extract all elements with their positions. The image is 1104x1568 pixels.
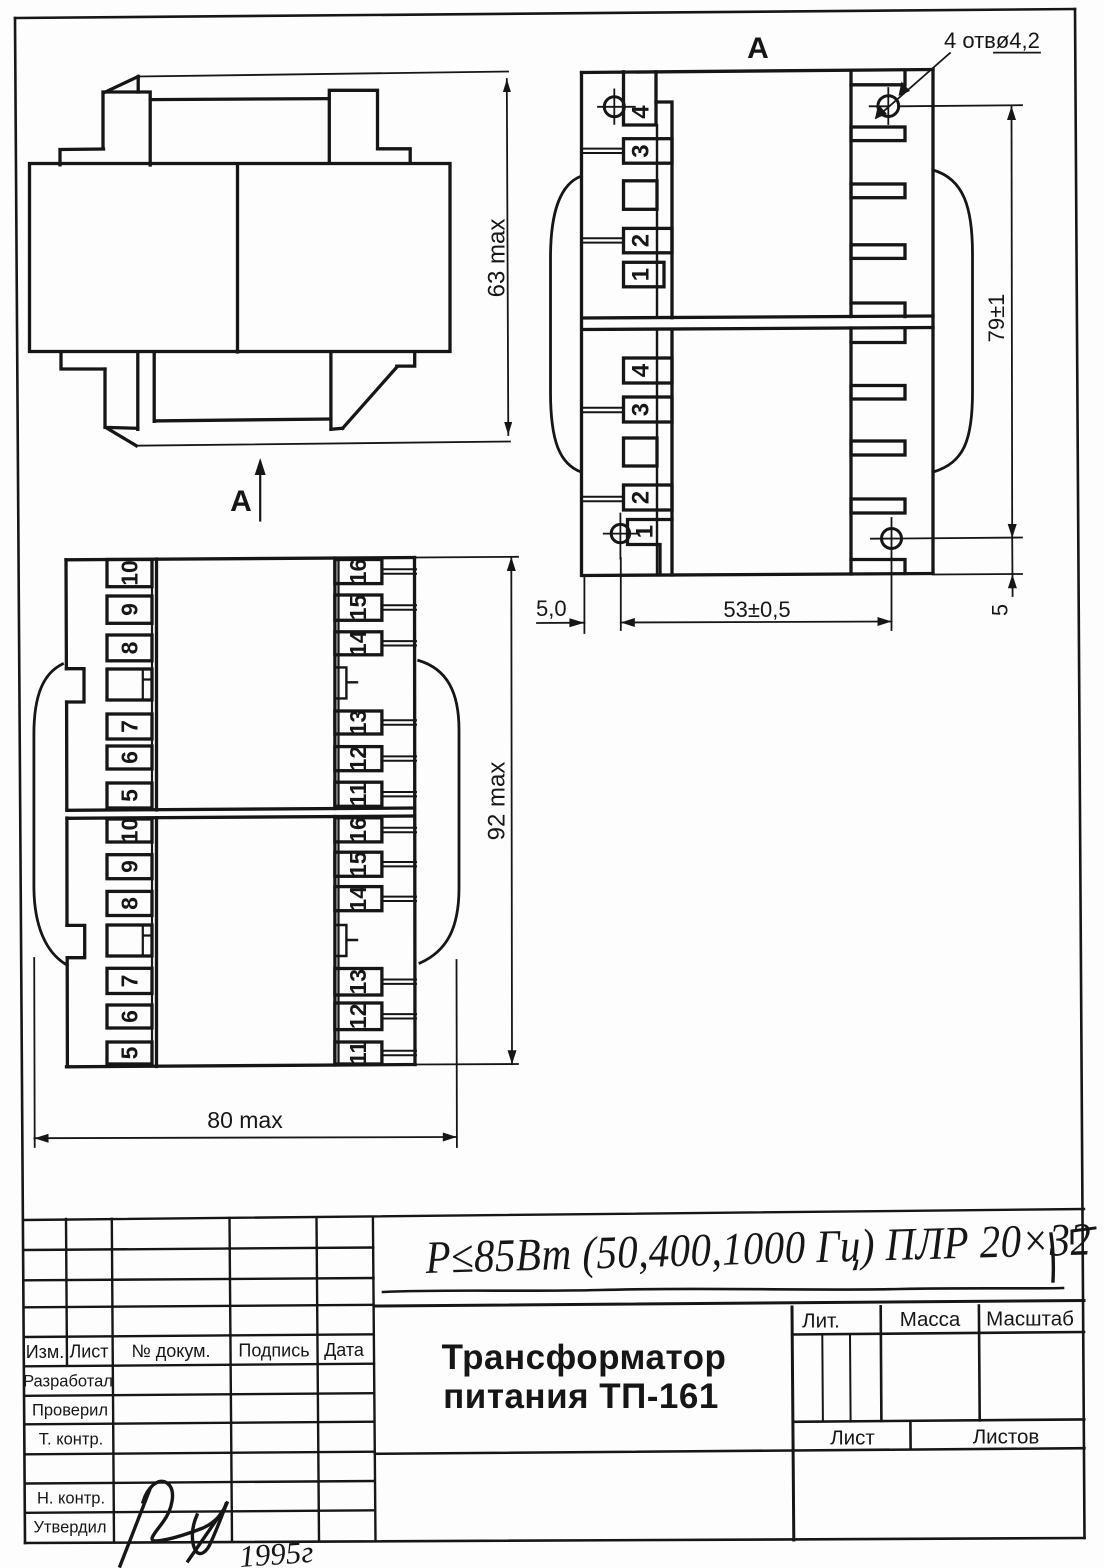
svg-text:92 max: 92 max: [484, 762, 511, 841]
svg-text:8: 8: [117, 641, 143, 654]
svg-text:9: 9: [117, 860, 143, 873]
svg-text:4: 4: [628, 363, 655, 377]
svg-text:4 отвø4,2: 4 отвø4,2: [944, 28, 1040, 53]
svg-text:5,0: 5,0: [536, 596, 567, 621]
svg-text:7: 7: [117, 975, 143, 988]
svg-text:Листов: Листов: [973, 1426, 1040, 1449]
svg-text:P≤85Вт (50,400,1000 Гц) ПЛР 20: P≤85Вт (50,400,1000 Гц) ПЛР 20×32: [424, 1214, 1092, 1283]
svg-text:6: 6: [117, 751, 143, 764]
svg-text:1: 1: [632, 525, 659, 538]
svg-text:Масштаб: Масштаб: [986, 1308, 1074, 1331]
svg-text:Трансформатор: Трансформатор: [442, 1338, 727, 1377]
svg-text:79±1: 79±1: [984, 294, 1009, 343]
svg-text:5: 5: [988, 604, 1013, 616]
svg-text:15: 15: [345, 851, 371, 877]
svg-text:Дата: Дата: [324, 1340, 365, 1360]
svg-text:63 max: 63 max: [484, 219, 511, 298]
svg-text:1995г: 1995г: [238, 1534, 314, 1568]
svg-text:1: 1: [628, 268, 655, 281]
svg-text:11: 11: [345, 1041, 371, 1066]
svg-text:Масса: Масса: [900, 1308, 961, 1331]
svg-text:14: 14: [345, 630, 371, 656]
svg-text:A: A: [230, 485, 252, 518]
svg-text:питания ТП-161: питания ТП-161: [443, 1377, 719, 1416]
svg-text:3: 3: [628, 144, 655, 157]
svg-text:2: 2: [628, 234, 655, 247]
svg-text:9: 9: [117, 603, 143, 616]
svg-text:13: 13: [345, 710, 371, 736]
svg-text:Лист: Лист: [69, 1342, 108, 1362]
svg-text:Изм.: Изм.: [26, 1342, 65, 1362]
svg-text:7: 7: [117, 720, 143, 733]
svg-text:№ докум.: № докум.: [131, 1341, 210, 1361]
svg-text:14: 14: [345, 886, 371, 912]
svg-text:10: 10: [117, 818, 143, 844]
svg-text:12: 12: [345, 746, 371, 772]
svg-text:8: 8: [117, 897, 143, 910]
svg-text:Проверил: Проверил: [32, 1402, 108, 1420]
svg-text:80 max: 80 max: [207, 1107, 283, 1133]
svg-text:Лит.: Лит.: [802, 1310, 840, 1333]
svg-text:A: A: [747, 32, 769, 65]
svg-text:11: 11: [345, 782, 371, 807]
svg-text:53±0,5: 53±0,5: [723, 597, 790, 622]
svg-text:Т. контр.: Т. контр.: [39, 1431, 103, 1449]
svg-text:15: 15: [345, 595, 371, 621]
svg-text:Разработал: Разработал: [23, 1373, 113, 1391]
svg-text:Подпись: Подпись: [238, 1341, 309, 1361]
svg-text:Лист: Лист: [830, 1427, 875, 1450]
svg-text:10: 10: [117, 560, 143, 586]
svg-text:16: 16: [345, 817, 371, 843]
svg-text:3: 3: [628, 403, 655, 416]
svg-text:Утвердил: Утвердил: [33, 1519, 106, 1537]
svg-text:12: 12: [345, 1004, 371, 1030]
svg-text:6: 6: [117, 1010, 143, 1023]
svg-text:13: 13: [345, 969, 371, 995]
svg-text:Н. контр.: Н. контр.: [37, 1490, 105, 1508]
svg-text:16: 16: [345, 559, 371, 585]
svg-text:2: 2: [628, 491, 655, 504]
svg-text:5: 5: [117, 1046, 143, 1059]
svg-text:5: 5: [117, 789, 143, 802]
